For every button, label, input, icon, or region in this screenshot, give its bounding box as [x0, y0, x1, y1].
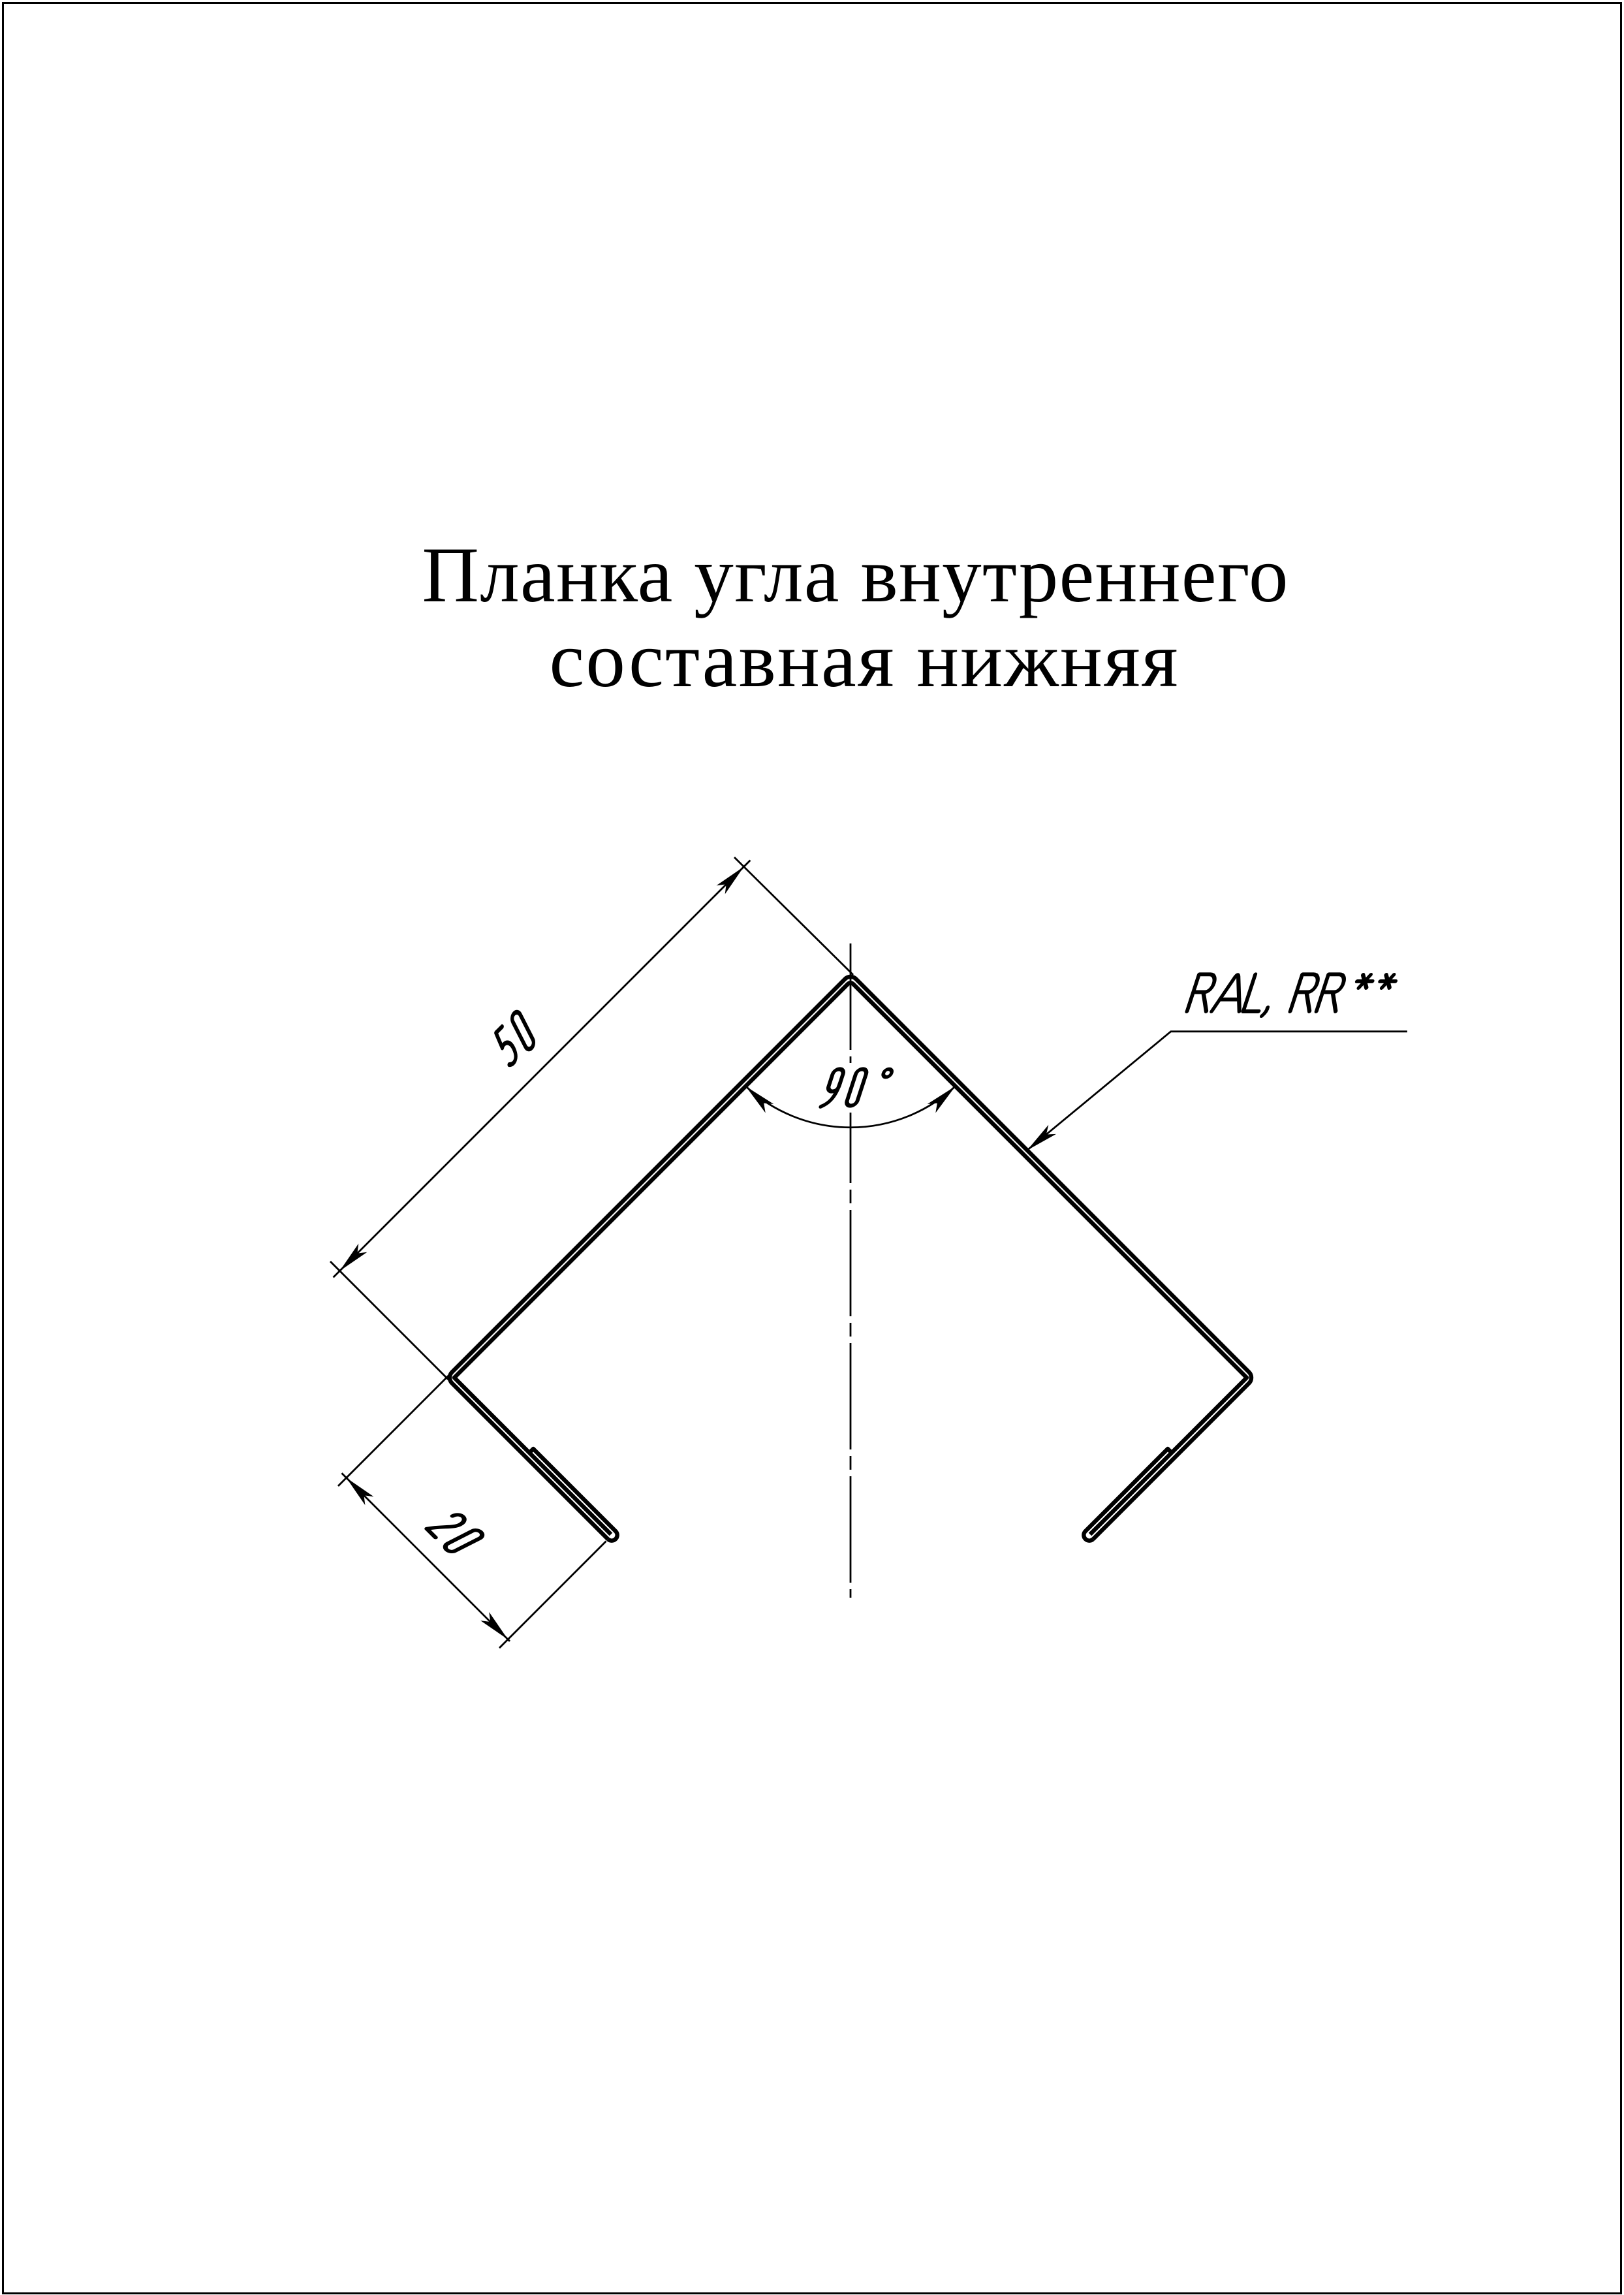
svg-text:Планка угла внутреннего: Планка угла внутреннего [422, 531, 1288, 619]
svg-text:составная нижняя: составная нижняя [550, 616, 1178, 704]
